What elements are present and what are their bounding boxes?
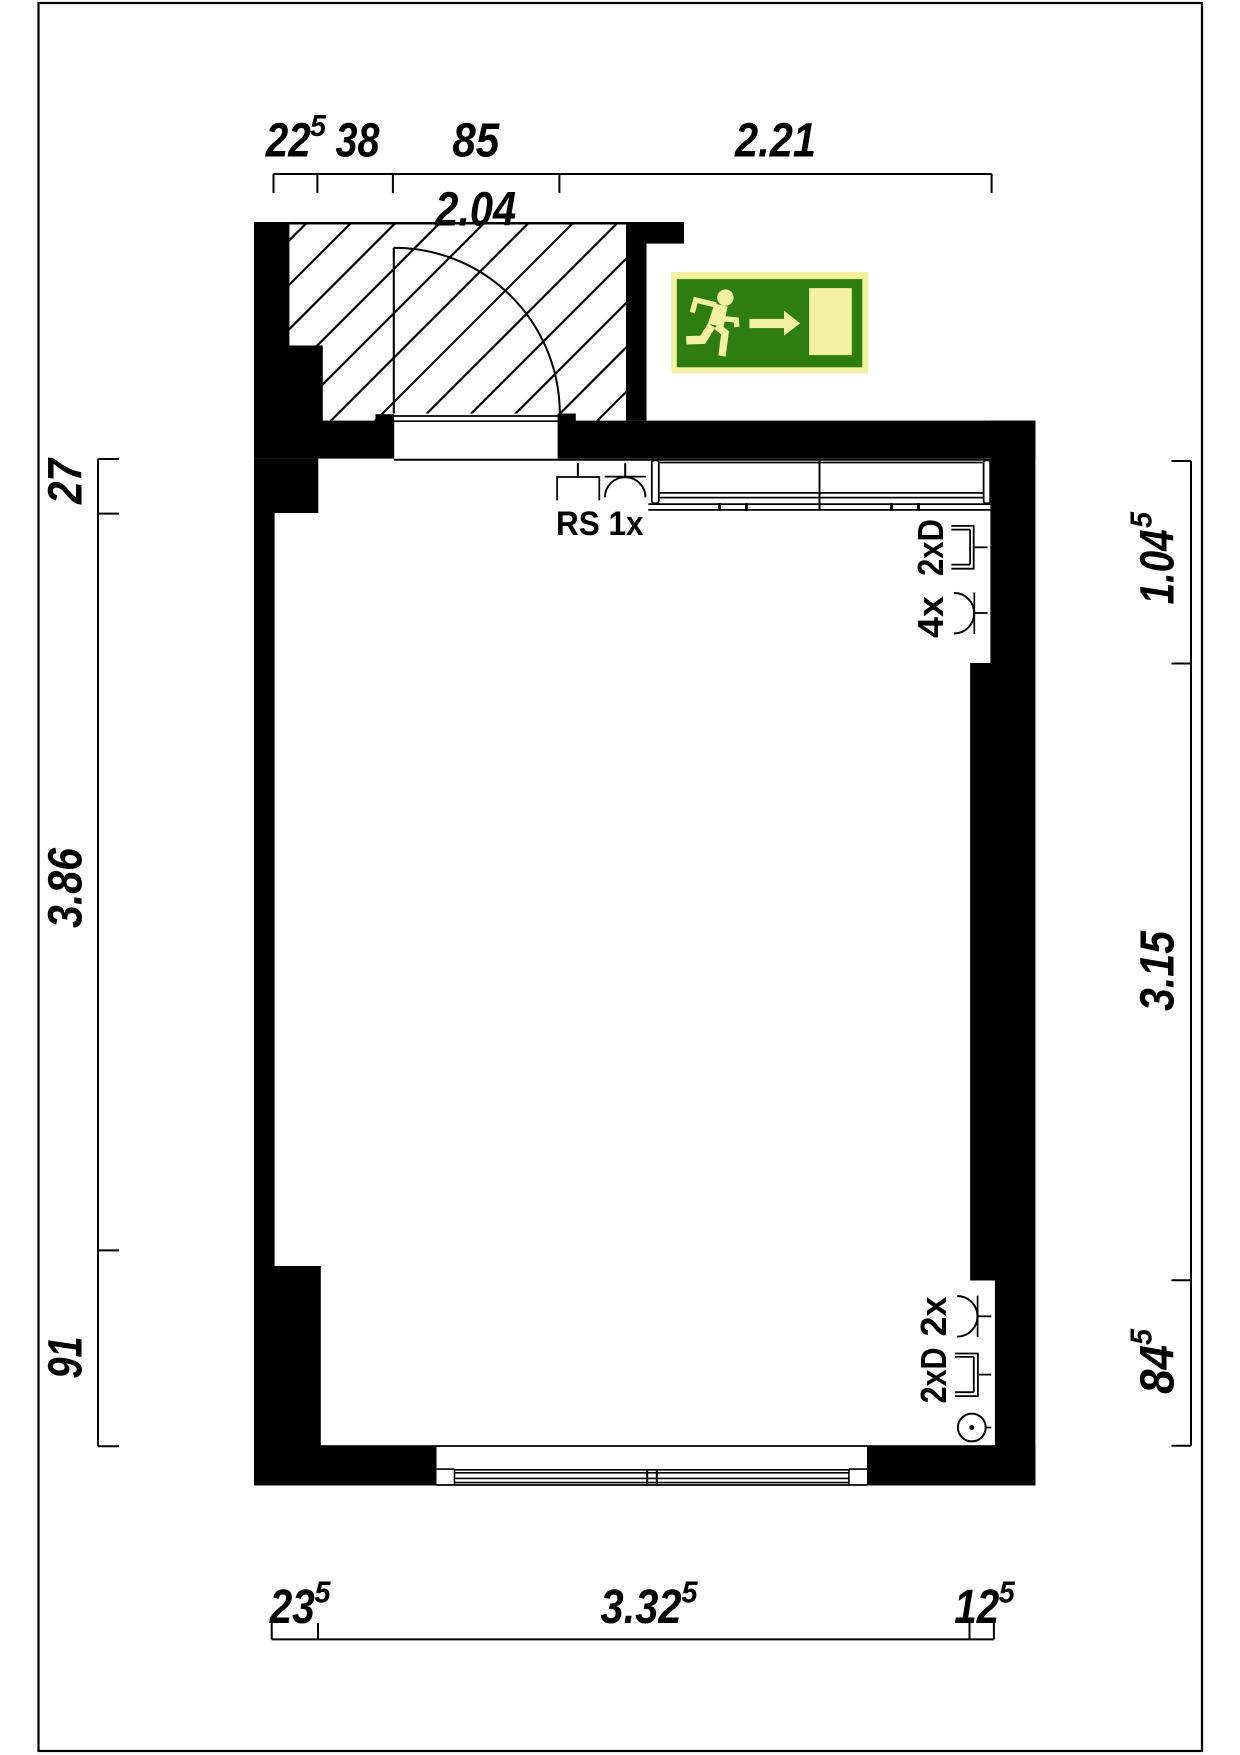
svg-text:23: 23	[269, 1581, 315, 1634]
svg-text:5: 5	[682, 1574, 699, 1609]
svg-text:12: 12	[954, 1581, 999, 1634]
svg-text:2x: 2x	[913, 1297, 954, 1337]
svg-text:2.21: 2.21	[734, 115, 816, 168]
svg-text:4x: 4x	[910, 596, 951, 638]
svg-text:85: 85	[452, 115, 500, 168]
svg-text:3.15: 3.15	[1132, 930, 1185, 1011]
svg-text:5: 5	[315, 1574, 332, 1609]
svg-text:2xD: 2xD	[913, 1347, 954, 1403]
svg-text:38: 38	[336, 115, 380, 168]
svg-text:3.86: 3.86	[40, 848, 93, 928]
svg-text:5: 5	[1124, 1328, 1159, 1345]
svg-text:27: 27	[40, 457, 93, 505]
svg-text:5: 5	[1124, 511, 1159, 528]
svg-text:84: 84	[1132, 1345, 1185, 1394]
svg-text:5: 5	[999, 1574, 1016, 1609]
svg-text:22: 22	[265, 115, 311, 168]
svg-text:3.32: 3.32	[601, 1581, 682, 1634]
svg-text:91: 91	[40, 1337, 93, 1379]
svg-text:5: 5	[310, 108, 327, 143]
svg-text:2.04: 2.04	[434, 184, 516, 237]
svg-text:2xD: 2xD	[910, 519, 951, 576]
svg-text:RS 1x: RS 1x	[556, 505, 644, 543]
svg-text:1.04: 1.04	[1132, 529, 1185, 604]
